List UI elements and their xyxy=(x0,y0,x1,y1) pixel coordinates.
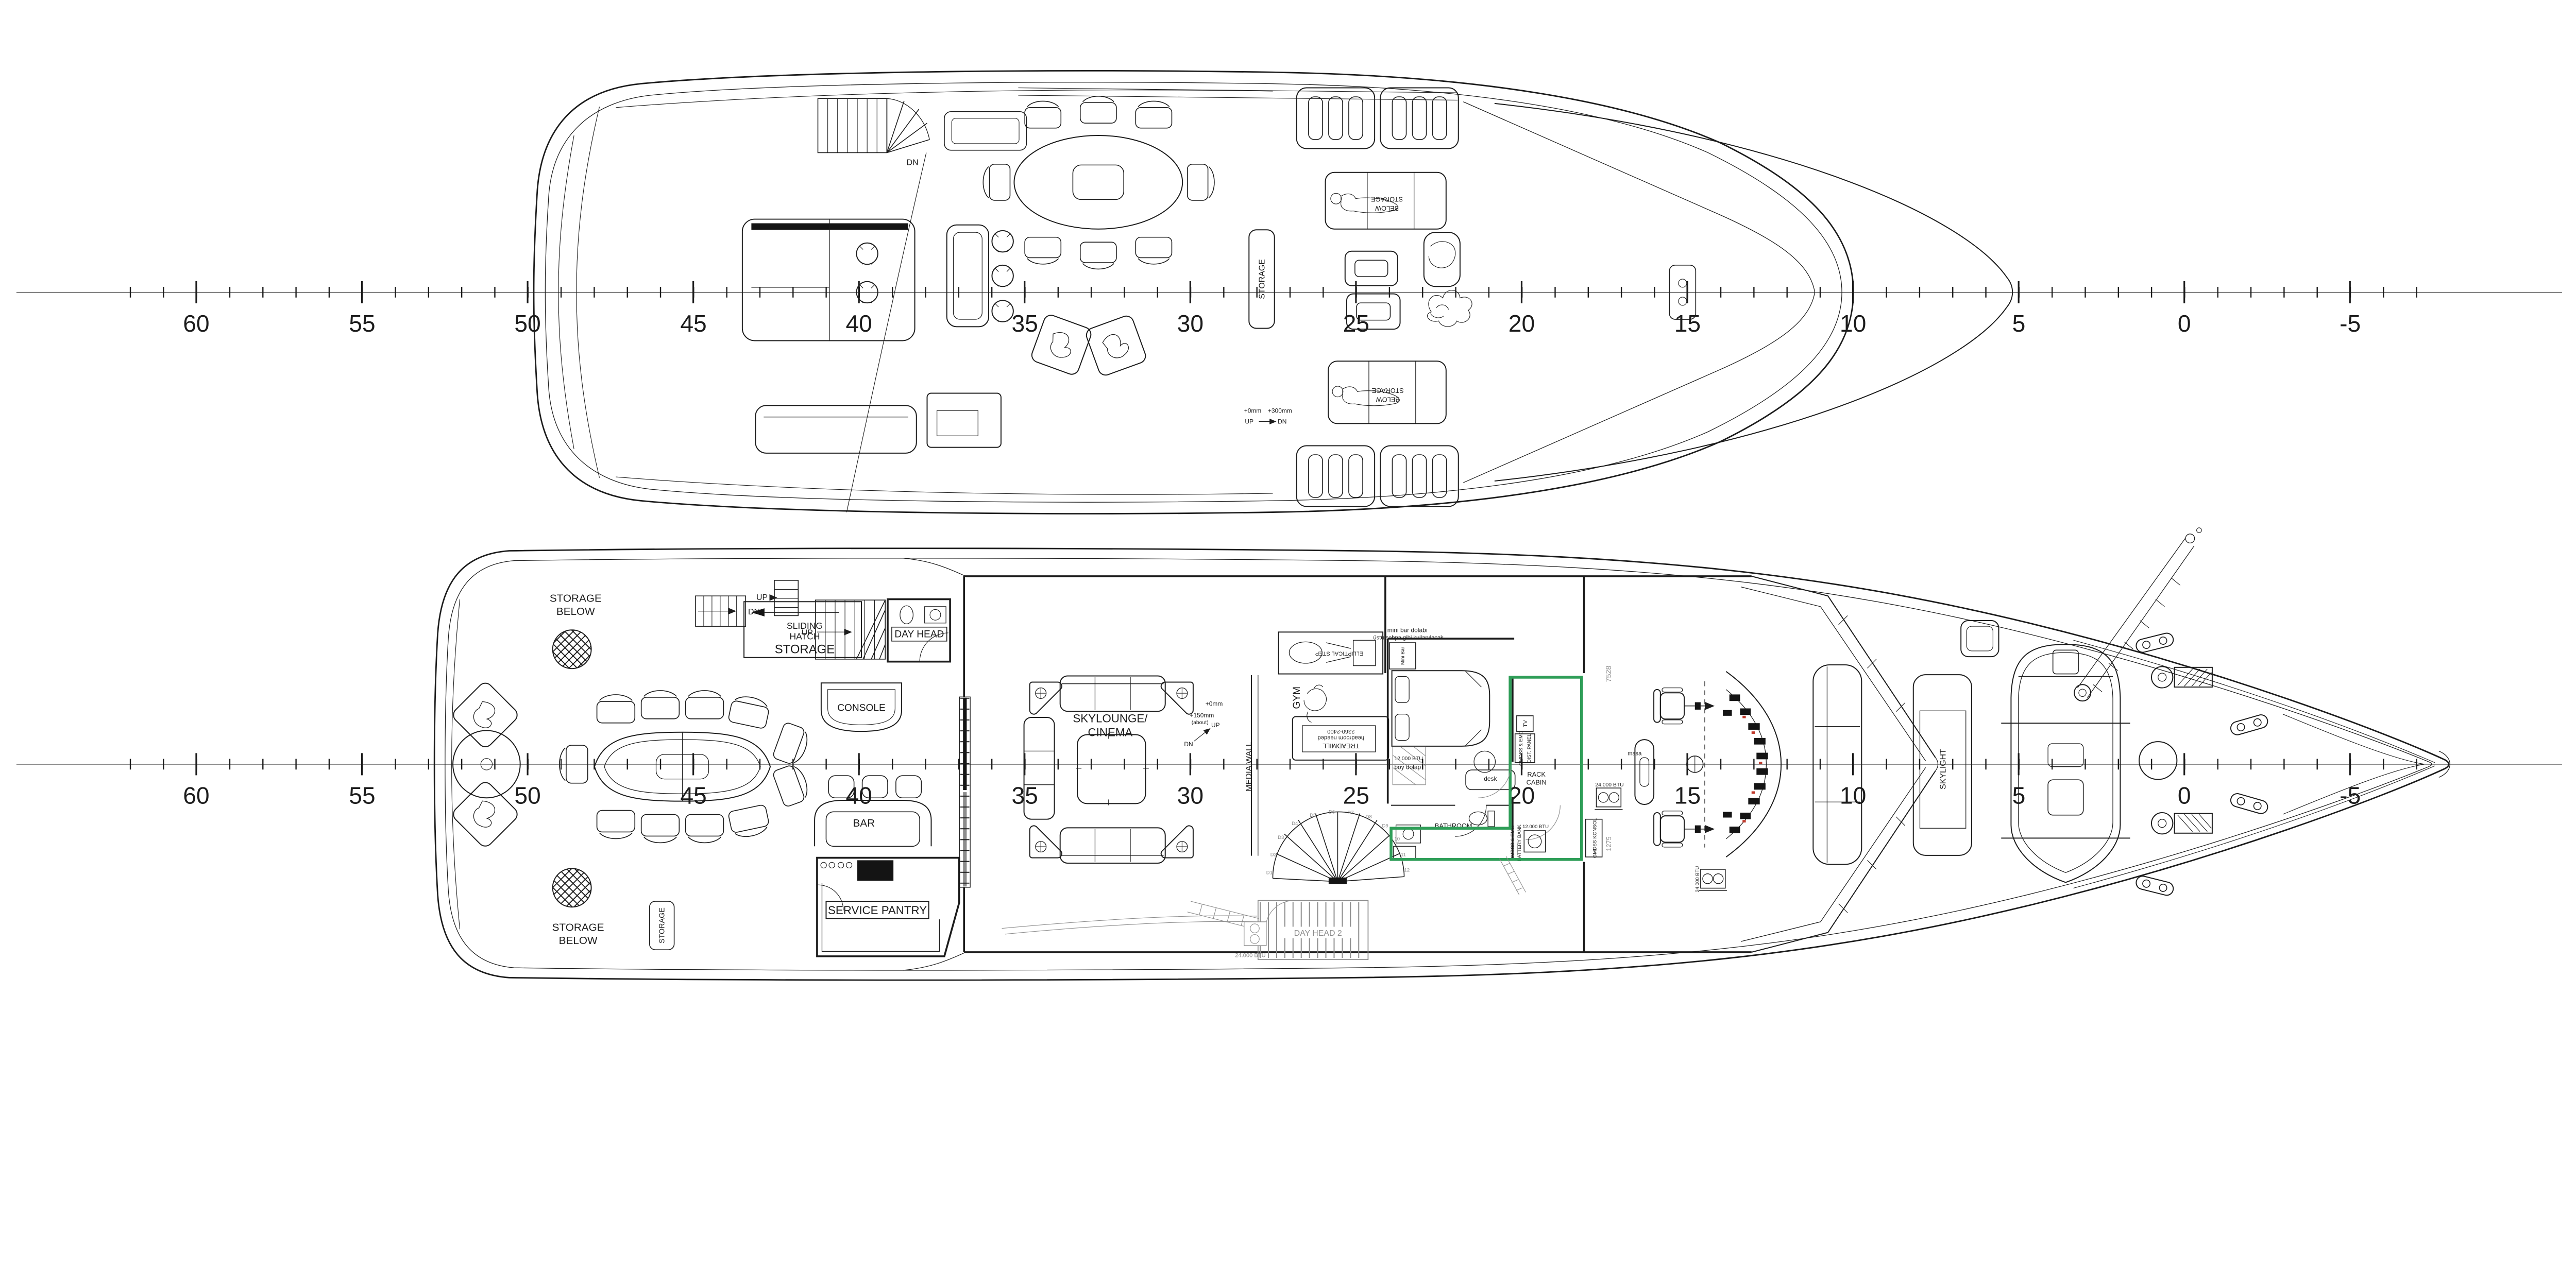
label-treadmill: TREADMILL xyxy=(1323,742,1360,750)
station-label: 20 xyxy=(1509,310,1535,337)
label-masa: masa xyxy=(1628,750,1642,757)
gmdss-konsol: GMDSS KONSOL xyxy=(1586,818,1602,858)
station-label: 40 xyxy=(845,782,872,809)
rack-cabin: TV GMDSS & EMG DIST. PANEL RACK CABIN GM… xyxy=(1510,677,1560,862)
label-step-up: UP xyxy=(1211,722,1220,729)
chart-table-masa: masa xyxy=(1628,740,1654,804)
label-storage-vertical: STORAGE xyxy=(1258,259,1267,299)
label-console: CONSOLE xyxy=(837,702,885,713)
step-annotation-skylounge: +0mm +150mm (about) DN UP xyxy=(1184,700,1223,748)
ac-unit-port: 24.000 BTU xyxy=(1595,782,1623,810)
fan-staircase: D1 D2 D3 D4 D5 D6 D7 D8 D9 10 11 12 xyxy=(1266,810,1410,884)
label-skylight: SKYLIGHT xyxy=(1939,749,1948,790)
stair-step-label: 10 xyxy=(1394,836,1400,842)
label-cabin: CABIN xyxy=(1527,779,1547,786)
label-storage-below: STORAGE xyxy=(552,921,604,933)
dining-chair xyxy=(728,804,771,840)
station-label: 0 xyxy=(2178,782,2191,809)
label-step-high: +150mm xyxy=(1190,712,1214,719)
label-storage-below-hatch: BELOW xyxy=(1376,396,1400,403)
label-btu-24: 24.000 BTU xyxy=(1695,866,1701,892)
bar-stool xyxy=(992,300,1013,321)
label-day-head: DAY HEAD xyxy=(894,629,944,640)
station-label: 15 xyxy=(1674,782,1701,809)
label-step-dn: DN xyxy=(1184,741,1193,748)
deck-cleat xyxy=(2229,713,2269,736)
deck-armchair xyxy=(450,780,520,849)
skylight: SKYLIGHT xyxy=(1913,675,1972,855)
dining-chair xyxy=(1025,101,1061,128)
station-label: 40 xyxy=(845,310,872,337)
foredeck-hatch-circle xyxy=(2139,742,2177,779)
station-label: 15 xyxy=(1674,310,1701,337)
label-wardrobe: boy dolap xyxy=(1394,763,1421,770)
station-label: 5 xyxy=(2012,782,2026,809)
label-btu-12: 12.000 BTU xyxy=(1394,756,1422,762)
dining-chair xyxy=(686,691,724,719)
label-minibar-note1: mini bar dolabı xyxy=(1387,626,1428,633)
deck-cleat xyxy=(2135,875,2175,897)
label-dn: DN xyxy=(748,608,760,616)
armchair-forward xyxy=(1424,232,1460,286)
dining-chair xyxy=(983,164,1010,200)
ac-unit-starboard: 24.000 BTU xyxy=(1695,866,1727,892)
station-label: 5 xyxy=(2012,310,2026,337)
station-label: 50 xyxy=(514,310,540,337)
label-stair-dn: DN xyxy=(907,158,919,167)
station-label: 0 xyxy=(2178,310,2191,337)
dim-7528: 7528 xyxy=(1605,666,1613,682)
label-gmdss-batt-2: BATTERY BANK xyxy=(1517,824,1522,861)
label-step-about: (about) xyxy=(1192,720,1209,726)
stair-step-label: D6 xyxy=(1329,810,1335,815)
station-label: 10 xyxy=(1840,310,1866,337)
dining-chair xyxy=(1136,237,1172,264)
round-seat xyxy=(856,243,877,264)
label-storage-below: BELOW xyxy=(556,606,595,617)
tender-crane xyxy=(2074,528,2201,701)
label-gmdss-dist-1: GMDSS & EMG xyxy=(1518,731,1524,766)
label-cinema: CINEMA xyxy=(1088,726,1133,739)
label-media-wall: MEDIA WALL xyxy=(1245,742,1253,792)
deck-cleat xyxy=(2135,632,2175,654)
label-tv: TV xyxy=(1523,720,1529,727)
dining-chair xyxy=(1136,101,1172,128)
sundeck-bar xyxy=(947,225,989,327)
sliding-door-track xyxy=(959,697,970,887)
day-head-room: DAY HEAD xyxy=(888,599,950,662)
aft-dining-table xyxy=(595,732,770,801)
dining-chair xyxy=(1025,237,1061,264)
station-ruler-lower: 60 55 50 45 40 35 30 25 20 15 10 5 0 -5 xyxy=(16,764,2562,809)
label-storage-below-hatch: BELOW xyxy=(1375,204,1399,212)
yacht-deck-plan-canvas: 60 55 50 45 40 35 30 25 20 15 10 5 0 -5 xyxy=(0,0,2576,1012)
bar-stool xyxy=(992,231,1013,252)
label-storage-below-hatch: STORAGE xyxy=(1372,387,1404,394)
port-stair-dn: DN xyxy=(696,596,760,626)
station-label: 55 xyxy=(349,310,375,337)
dining-chair xyxy=(772,762,812,808)
stair-step-label: 12 xyxy=(1404,868,1410,873)
label-minibar: Mini Bar xyxy=(1400,646,1406,665)
label-gmdss-konsol: GMDSS KONSOL xyxy=(1592,818,1598,858)
dining-chair xyxy=(1080,96,1116,123)
label-elliptical: ELLIPTICAL STEP xyxy=(1315,650,1364,657)
label-step-up: UP xyxy=(1245,418,1253,425)
label-treadmill-dim: 2360-2400 xyxy=(1327,728,1354,734)
plant xyxy=(1428,290,1472,327)
station-label: 55 xyxy=(349,782,375,809)
station-label: 45 xyxy=(680,782,706,809)
station-label: -5 xyxy=(2340,310,2361,337)
dining-chair xyxy=(772,722,812,767)
label-rack: RACK xyxy=(1527,770,1546,778)
bar-counter: BAR xyxy=(815,776,931,846)
label-minibar-note2: üstü sehpa gibi kullanılacak xyxy=(1373,635,1444,641)
lounge-chair xyxy=(1084,314,1148,377)
aft-bench xyxy=(755,393,1001,453)
stair-step-label: D2 xyxy=(1270,852,1277,857)
stair-step-label: D9 xyxy=(1382,823,1388,829)
stair-step-label: D8 xyxy=(1366,814,1372,820)
deck-cleat xyxy=(2229,792,2269,815)
bow-hatch xyxy=(1961,621,1998,657)
stair-step-label: D5 xyxy=(1310,813,1316,818)
media-wall: MEDIA WALL xyxy=(1245,675,1258,856)
label-storage-below: BELOW xyxy=(559,935,598,947)
storage-locker-sundeck: STORAGE xyxy=(1249,230,1274,328)
dining-chair xyxy=(597,695,635,723)
bar-stool xyxy=(992,265,1013,286)
station-label: 30 xyxy=(1177,310,1204,337)
lounger-hatch-starboard: STORAGE BELOW xyxy=(1328,361,1446,423)
dining-chair xyxy=(641,691,680,719)
label-up: UP xyxy=(756,593,768,602)
label-btu-12: 12.000 BTU xyxy=(1522,824,1549,830)
dining-chair xyxy=(686,815,724,843)
label-storage: STORAGE xyxy=(775,643,835,657)
label-storage-below: STORAGE xyxy=(550,592,602,604)
step-annotation-sundeck: +0mm +300mm UP DN xyxy=(1244,407,1292,425)
station-label: 30 xyxy=(1177,782,1204,809)
console-cabinet-inner xyxy=(952,118,1019,144)
bathroom: BATHROOM xyxy=(1391,805,1511,859)
station-ruler-upper: 60 55 50 45 40 35 30 25 20 15 10 5 0 -5 xyxy=(16,292,2562,337)
service-pantry: SERVICE PANTRY xyxy=(817,858,959,956)
deck-hatch-circle xyxy=(553,630,591,907)
helm-chair xyxy=(1654,688,1713,724)
label-desk: desk xyxy=(1484,775,1497,782)
dining-chair xyxy=(728,694,771,729)
station-labels-upper: 60 55 50 45 40 35 30 25 20 15 10 5 0 -5 xyxy=(183,310,2361,337)
day-head-2-grey: DAY HEAD 2 24.000 BTU xyxy=(1235,900,1368,959)
station-label: 45 xyxy=(680,310,706,337)
skylounge-cinema: SKYLOUNGE/ CINEMA xyxy=(1024,676,1193,863)
stair-step-label: D4 xyxy=(1292,821,1298,827)
lounge-chair xyxy=(1030,313,1093,376)
stair-step-label: D7 xyxy=(1348,810,1354,816)
label-gmdss-dist-2: DIST. PANEL xyxy=(1527,734,1532,763)
stair-step-label: 11 xyxy=(1401,852,1406,857)
dim-1275: 1275 xyxy=(1605,836,1613,851)
label-service-pantry: SERVICE PANTRY xyxy=(828,904,927,917)
helm-chair xyxy=(1654,811,1713,847)
station-label: 60 xyxy=(183,310,209,337)
tender xyxy=(2001,644,2130,882)
station-labels-lower: 60 55 50 45 40 35 30 25 20 15 10 5 0 -5 xyxy=(183,782,2361,809)
wardrobe: 12.000 BTU boy dolap xyxy=(1393,747,1426,784)
label-step-zero: +0mm xyxy=(1206,700,1223,708)
mooring-winch xyxy=(2151,813,2212,834)
station-label: 25 xyxy=(1343,782,1369,809)
label-treadmill-note: headroom needed xyxy=(1318,735,1364,741)
label-btu-24: 24.000 BTU xyxy=(1595,782,1623,788)
dining-chair xyxy=(1080,242,1116,269)
sunpad-settee xyxy=(742,219,915,341)
label-gmdss-batt-1: GMDSS & EMG xyxy=(1510,826,1516,861)
desk-area: desk xyxy=(1466,751,1515,790)
stair-step-label: D3 xyxy=(1278,835,1284,840)
storage-locker-starboard: STORAGE xyxy=(650,901,674,950)
dining-chair xyxy=(597,811,635,839)
dining-chair xyxy=(1188,164,1214,200)
dining-chair xyxy=(641,815,680,843)
station-label: 10 xyxy=(1840,782,1866,809)
dining-table-sundeck xyxy=(1014,135,1182,229)
station-label: 60 xyxy=(183,782,209,809)
gangway-grey xyxy=(1499,856,1526,895)
label-bar: BAR xyxy=(853,817,875,829)
label-skylounge: SKYLOUNGE/ xyxy=(1073,712,1148,725)
station-label: 35 xyxy=(1011,310,1038,337)
label-storage-vertical: STORAGE xyxy=(658,907,666,943)
bed xyxy=(1392,671,1490,746)
label-step-zero: +0mm xyxy=(1244,407,1262,415)
label-day-head-2: DAY HEAD 2 xyxy=(1294,929,1342,938)
label-step-high: +300mm xyxy=(1268,407,1292,415)
label-gym: GYM xyxy=(1292,687,1302,709)
console-cabinet xyxy=(944,112,1026,150)
stair-step-label: D1 xyxy=(1266,870,1273,876)
label-btu-24-grey: 24.000 BTU xyxy=(1235,952,1265,958)
forward-sunpad-slats xyxy=(1297,88,1459,507)
label-storage-below-hatch: STORAGE xyxy=(1371,196,1403,203)
bridge-deck-plan: STORAGE BELOW STORAGE BELOW STORAGE SLID… xyxy=(434,528,2450,980)
station-label: 35 xyxy=(1011,782,1038,809)
label-up-inner: UP xyxy=(802,629,813,638)
below-deck-grey-elements: DAY HEAD 2 24.000 BTU xyxy=(1002,765,1526,959)
lounger-hatch-port: STORAGE BELOW xyxy=(1326,173,1446,229)
gym: ELLIPTICAL STEP GYM TREADMILL headroom n… xyxy=(1279,576,1389,760)
station-label: 50 xyxy=(514,782,540,809)
console-pod: CONSOLE xyxy=(821,683,902,731)
label-step-dn: DN xyxy=(1278,418,1286,425)
